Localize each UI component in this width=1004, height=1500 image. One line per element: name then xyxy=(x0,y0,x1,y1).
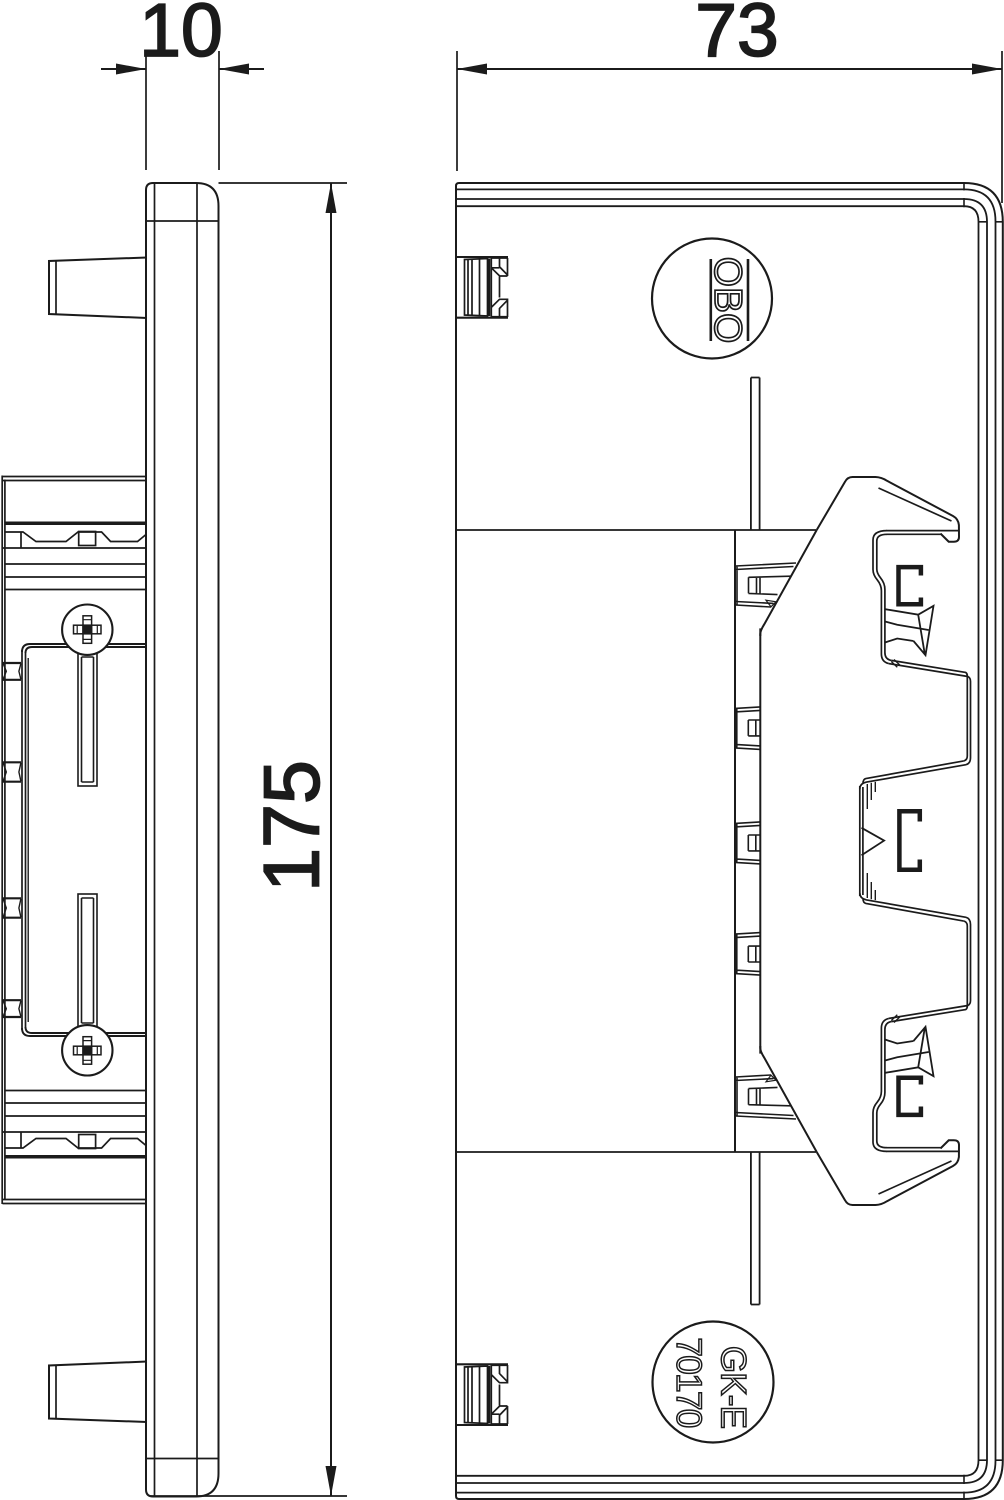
svg-text:73: 73 xyxy=(695,0,778,72)
svg-text:GK-E: GK-E xyxy=(714,1346,753,1428)
svg-text:10: 10 xyxy=(139,0,222,72)
svg-text:OBO: OBO xyxy=(706,257,749,344)
svg-text:175: 175 xyxy=(247,760,336,892)
svg-text:70170: 70170 xyxy=(669,1337,708,1427)
